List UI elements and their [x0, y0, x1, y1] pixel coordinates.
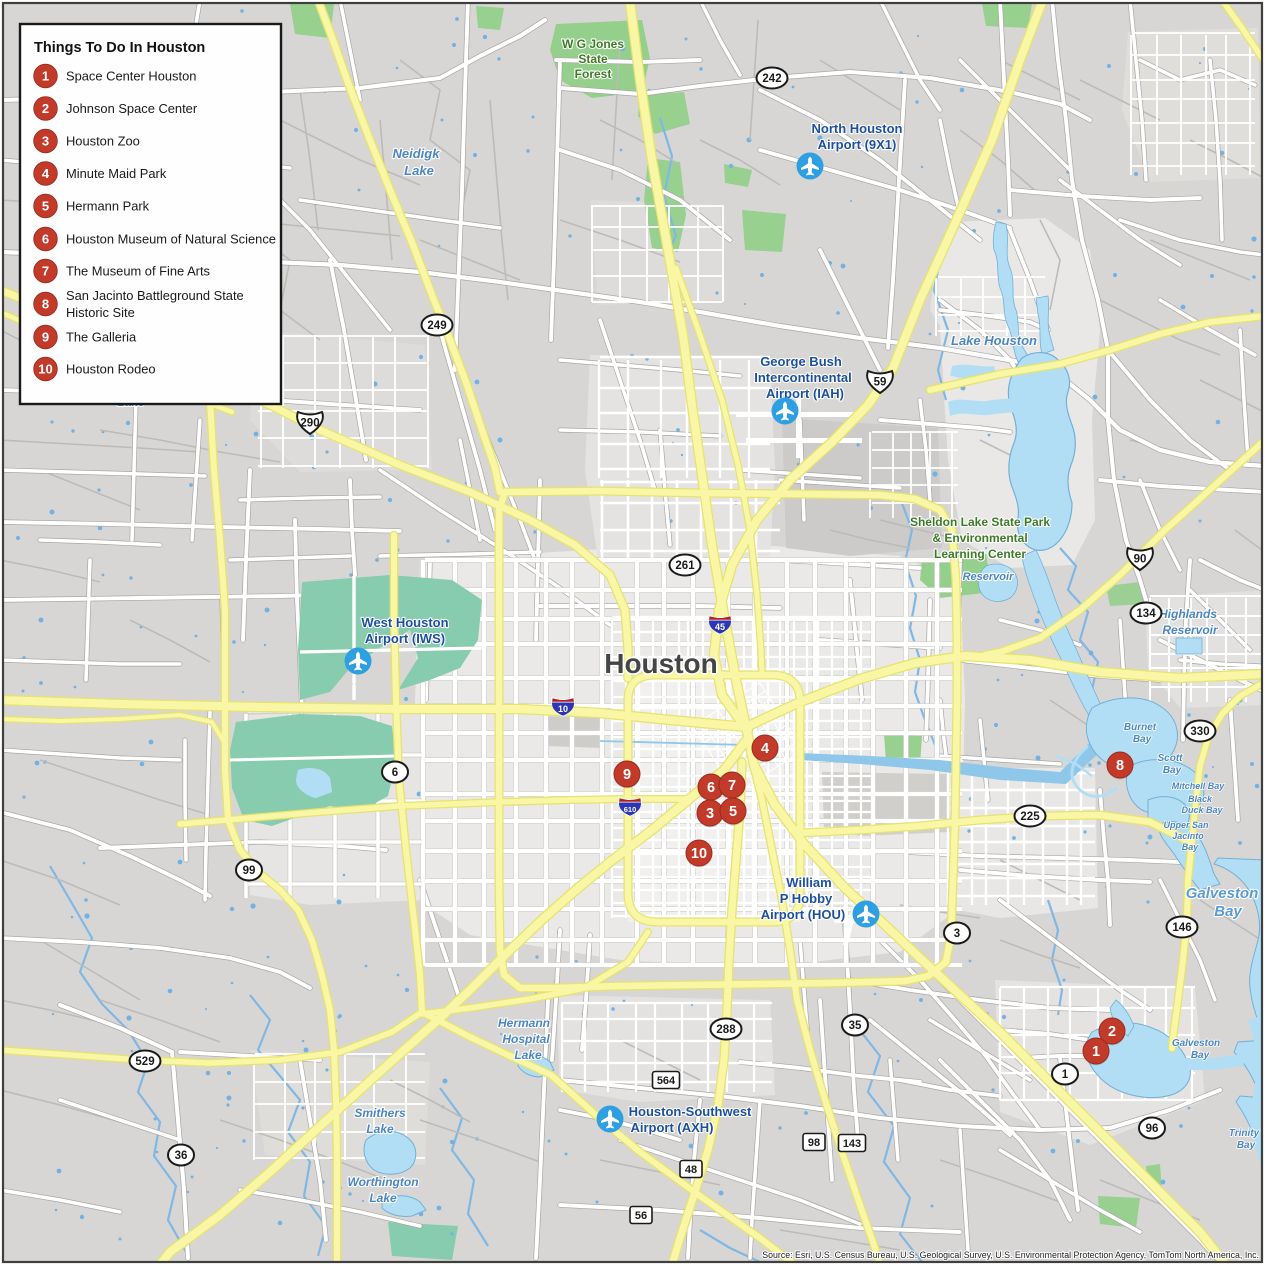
svg-text:Space Center Houston: Space Center Houston — [66, 69, 196, 84]
svg-text:96: 96 — [1146, 1123, 1159, 1135]
svg-text:Airport (HOU): Airport (HOU) — [761, 907, 846, 922]
svg-text:Reservoir: Reservoir — [1162, 623, 1219, 637]
svg-text:Bay: Bay — [1237, 1140, 1256, 1151]
svg-text:Source: Esri, U.S. Census Bure: Source: Esri, U.S. Census Bureau, U.S. G… — [762, 1250, 1259, 1260]
svg-text:William: William — [786, 875, 831, 890]
svg-text:261: 261 — [675, 560, 695, 572]
svg-text:99: 99 — [243, 865, 256, 877]
svg-text:Lake: Lake — [369, 1191, 397, 1205]
svg-text:36: 36 — [175, 1150, 188, 1162]
svg-text:Bay: Bay — [1163, 765, 1182, 776]
svg-text:146: 146 — [1172, 922, 1191, 934]
svg-text:288: 288 — [716, 1024, 736, 1036]
svg-text:143: 143 — [843, 1138, 861, 1150]
svg-text:Learning Center: Learning Center — [934, 547, 1026, 561]
svg-text:3: 3 — [42, 134, 49, 149]
svg-text:7: 7 — [728, 778, 736, 794]
svg-text:Scott: Scott — [1158, 753, 1184, 764]
svg-text:1: 1 — [1092, 1044, 1100, 1060]
svg-text:Houston Rodeo: Houston Rodeo — [66, 362, 156, 377]
svg-text:Houston Museum of Natural Scie: Houston Museum of Natural Science — [66, 232, 276, 247]
svg-text:10: 10 — [558, 704, 568, 714]
svg-text:Lake: Lake — [366, 1122, 394, 1136]
svg-text:Houston-Southwest: Houston-Southwest — [629, 1104, 752, 1119]
svg-text:George Bush: George Bush — [760, 354, 842, 369]
svg-text:529: 529 — [135, 1056, 154, 1068]
svg-text:330: 330 — [1190, 726, 1209, 738]
svg-text:3: 3 — [954, 928, 960, 940]
svg-text:Galveston: Galveston — [1172, 1038, 1220, 1049]
svg-text:Bay: Bay — [1133, 734, 1152, 745]
svg-text:6: 6 — [392, 767, 398, 779]
svg-text:Mitchell Bay: Mitchell Bay — [1172, 781, 1226, 791]
svg-text:4: 4 — [42, 166, 50, 181]
svg-text:610: 610 — [624, 805, 637, 814]
svg-text:Bay: Bay — [1214, 903, 1242, 920]
svg-text:Forest: Forest — [575, 67, 612, 81]
svg-text:6: 6 — [42, 232, 49, 247]
svg-text:10: 10 — [691, 846, 707, 862]
svg-text:Lake: Lake — [404, 163, 434, 178]
svg-text:4: 4 — [761, 741, 769, 757]
svg-text:1: 1 — [42, 69, 49, 84]
svg-text:5: 5 — [729, 804, 737, 820]
svg-text:P Hobby: P Hobby — [780, 891, 833, 906]
svg-text:Lake Houston: Lake Houston — [951, 333, 1037, 348]
svg-text:North Houston: North Houston — [812, 121, 903, 136]
svg-text:5: 5 — [42, 199, 49, 214]
svg-text:6: 6 — [707, 780, 715, 796]
svg-text:The Galleria: The Galleria — [66, 330, 137, 345]
svg-text:134: 134 — [1136, 608, 1156, 620]
svg-text:Highlands: Highlands — [1159, 607, 1217, 621]
svg-text:Airport (AXH): Airport (AXH) — [630, 1120, 713, 1135]
svg-text:W G Jones: W G Jones — [562, 37, 624, 51]
svg-text:290: 290 — [300, 418, 319, 430]
svg-text:Houston: Houston — [604, 648, 718, 679]
svg-text:564: 564 — [657, 1075, 676, 1087]
svg-text:2: 2 — [42, 101, 49, 116]
svg-text:Sheldon Lake State Park: Sheldon Lake State Park — [910, 515, 1050, 529]
svg-text:242: 242 — [762, 73, 781, 85]
svg-text:Houston Zoo: Houston Zoo — [66, 134, 140, 149]
svg-text:2: 2 — [1108, 1024, 1116, 1040]
svg-text:9: 9 — [623, 767, 631, 783]
svg-text:Minute Maid Park: Minute Maid Park — [66, 166, 167, 181]
svg-text:Intercontinental: Intercontinental — [754, 370, 852, 385]
svg-text:San Jacinto Battleground State: San Jacinto Battleground State — [66, 288, 244, 303]
svg-text:Neidigk: Neidigk — [393, 146, 441, 161]
svg-text:1: 1 — [1062, 1069, 1069, 1081]
svg-text:Johnson Space Center: Johnson Space Center — [66, 101, 198, 116]
svg-text:Galveston: Galveston — [1186, 885, 1259, 902]
svg-text:Bay: Bay — [1191, 1050, 1210, 1061]
svg-text:Airport (9X1): Airport (9X1) — [818, 137, 897, 152]
svg-text:56: 56 — [635, 1210, 647, 1222]
svg-text:Lake: Lake — [514, 1048, 542, 1062]
svg-text:59: 59 — [874, 377, 887, 389]
svg-text:9: 9 — [42, 330, 49, 345]
svg-text:Bay: Bay — [1182, 842, 1200, 852]
svg-text:Worthington: Worthington — [347, 1175, 418, 1189]
svg-text:Trinity: Trinity — [1229, 1128, 1260, 1139]
svg-text:Hospital: Hospital — [502, 1032, 550, 1046]
svg-text:& Environmental: & Environmental — [932, 531, 1027, 545]
svg-text:Jacinto: Jacinto — [1172, 831, 1204, 841]
svg-text:Black: Black — [1188, 794, 1213, 804]
svg-text:10: 10 — [38, 362, 52, 377]
svg-text:Hermann Park: Hermann Park — [66, 199, 150, 214]
svg-text:Hermann: Hermann — [498, 1016, 550, 1030]
svg-text:90: 90 — [1134, 554, 1147, 566]
svg-text:48: 48 — [685, 1164, 697, 1176]
svg-text:Duck Bay: Duck Bay — [1181, 805, 1223, 815]
svg-text:Reservoir: Reservoir — [963, 571, 1014, 583]
svg-text:Upper San: Upper San — [1163, 820, 1209, 830]
svg-text:State: State — [578, 52, 608, 66]
svg-text:Historic Site: Historic Site — [66, 305, 135, 320]
svg-text:98: 98 — [808, 1137, 820, 1149]
svg-text:8: 8 — [42, 297, 49, 312]
svg-text:45: 45 — [715, 622, 725, 632]
svg-text:Burnet: Burnet — [1124, 722, 1157, 733]
svg-text:35: 35 — [849, 1020, 862, 1032]
svg-text:Smithers: Smithers — [354, 1106, 406, 1120]
svg-text:7: 7 — [42, 264, 49, 279]
svg-text:West Houston: West Houston — [361, 615, 448, 630]
svg-text:225: 225 — [1020, 811, 1040, 823]
svg-text:249: 249 — [427, 320, 446, 332]
svg-text:3: 3 — [706, 806, 714, 822]
svg-text:Airport (IAH): Airport (IAH) — [766, 386, 844, 401]
svg-text:The Museum of Fine Arts: The Museum of Fine Arts — [66, 264, 210, 279]
svg-text:8: 8 — [1116, 758, 1124, 774]
svg-text:Airport (IWS): Airport (IWS) — [365, 631, 445, 646]
svg-text:Things To Do In Houston: Things To Do In Houston — [34, 40, 205, 56]
